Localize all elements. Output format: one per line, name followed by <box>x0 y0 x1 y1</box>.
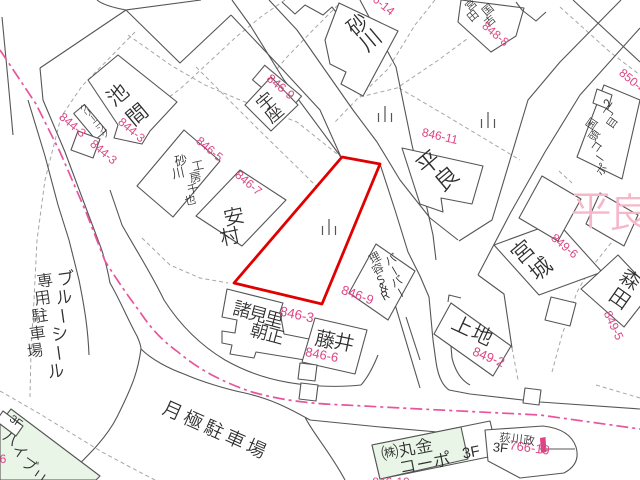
svg-text:844-6: 844-6 <box>0 452 7 466</box>
svg-text:846-10: 846-10 <box>372 475 410 480</box>
svg-text:3F: 3F <box>461 443 481 463</box>
svg-text:3F: 3F <box>492 439 509 456</box>
